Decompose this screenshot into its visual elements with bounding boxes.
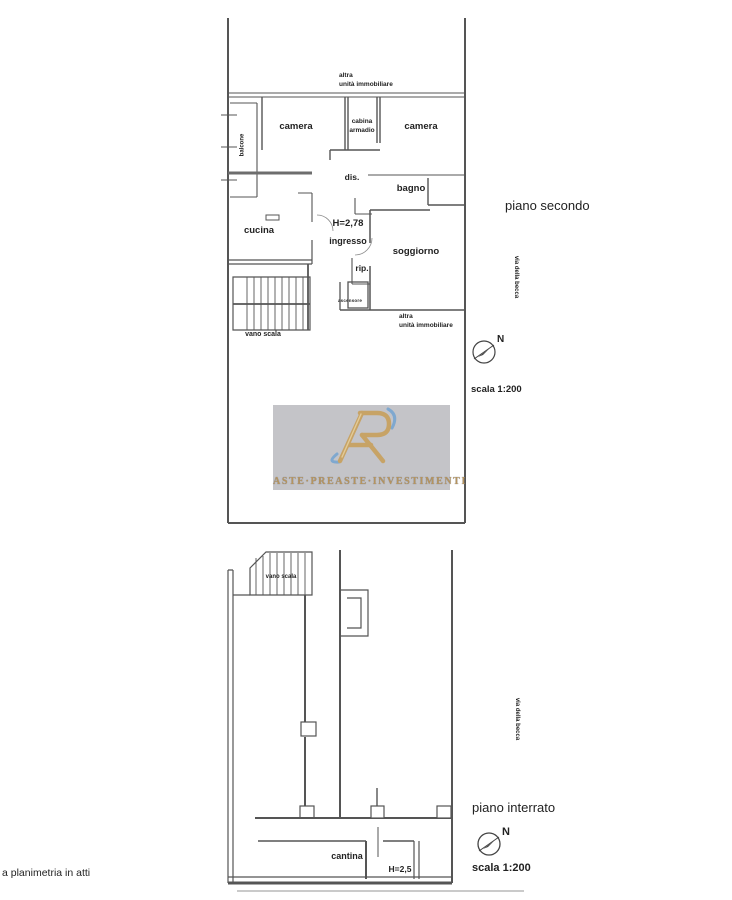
cabina-line2: armadio: [349, 127, 374, 136]
upper-neighbor-bottom-line1: altra: [399, 313, 453, 322]
north-compass-icon-upper: [473, 341, 495, 363]
room-label-ascensore: ascensore: [338, 298, 362, 303]
north-label-upper: N: [497, 334, 504, 345]
footer-note: a planimetria in atti: [2, 867, 90, 879]
room-label-cabina-armadio: cabina armadio: [349, 118, 374, 135]
street-label-upper-wrap: via della becca: [504, 253, 528, 301]
agency-watermark: ASTE·PREASTE·INVESTIMENTI: [273, 405, 450, 490]
upper-neighbor-top-label: altra unità immobiliare: [339, 72, 393, 89]
room-label-cantina: cantina: [331, 851, 363, 861]
cabina-line1: cabina: [349, 118, 374, 127]
street-label-upper: via della becca: [513, 256, 519, 298]
ceiling-height-upper: H=2,78: [333, 218, 364, 229]
scale-label-upper: scala 1:200: [471, 384, 522, 395]
scanned-floorplan-page: { "upper_plan": { "name_label": "piano s…: [0, 0, 732, 900]
upper-neighbor-bottom-line2: unità immobiliare: [399, 322, 453, 331]
upper-neighbor-bottom-label: altra unità immobiliare: [399, 313, 453, 330]
ceiling-height-lower: H=2,5: [389, 864, 412, 874]
room-label-camera-right: camera: [404, 121, 437, 132]
room-label-cucina: cucina: [244, 225, 274, 236]
lower-plan-walls: [228, 550, 524, 891]
room-label-balcone-wrap: balcone: [229, 123, 255, 167]
brand-wordmark: ASTE·PREASTE·INVESTIMENTI: [273, 476, 450, 487]
upper-neighbor-top-line1: altra: [339, 72, 393, 81]
room-label-soggiorno: soggiorno: [393, 246, 439, 257]
north-label-lower: N: [502, 826, 510, 838]
room-label-bagno: bagno: [397, 183, 426, 194]
street-label-lower-wrap: via della becca: [505, 695, 529, 743]
room-label-disimpegno: dis.: [345, 172, 360, 182]
lower-plan-title: piano interrato: [472, 800, 555, 815]
brand-logo-icon: [317, 407, 407, 465]
room-label-ripostiglio: rip.: [355, 263, 368, 273]
room-label-vano-scala-upper: vano scala: [245, 331, 281, 338]
room-label-balcone: balcone: [239, 134, 245, 157]
north-compass-icon-lower: [478, 833, 500, 855]
scale-label-lower: scala 1:200: [472, 862, 531, 874]
room-label-camera-left: camera: [279, 121, 312, 132]
room-label-ingresso: ingresso: [329, 236, 367, 246]
room-label-vano-scala-lower: vano scala: [266, 574, 297, 580]
upper-plan-title: piano secondo: [505, 198, 590, 213]
upper-neighbor-top-line2: unità immobiliare: [339, 81, 393, 90]
street-label-lower: via della becca: [514, 698, 520, 740]
